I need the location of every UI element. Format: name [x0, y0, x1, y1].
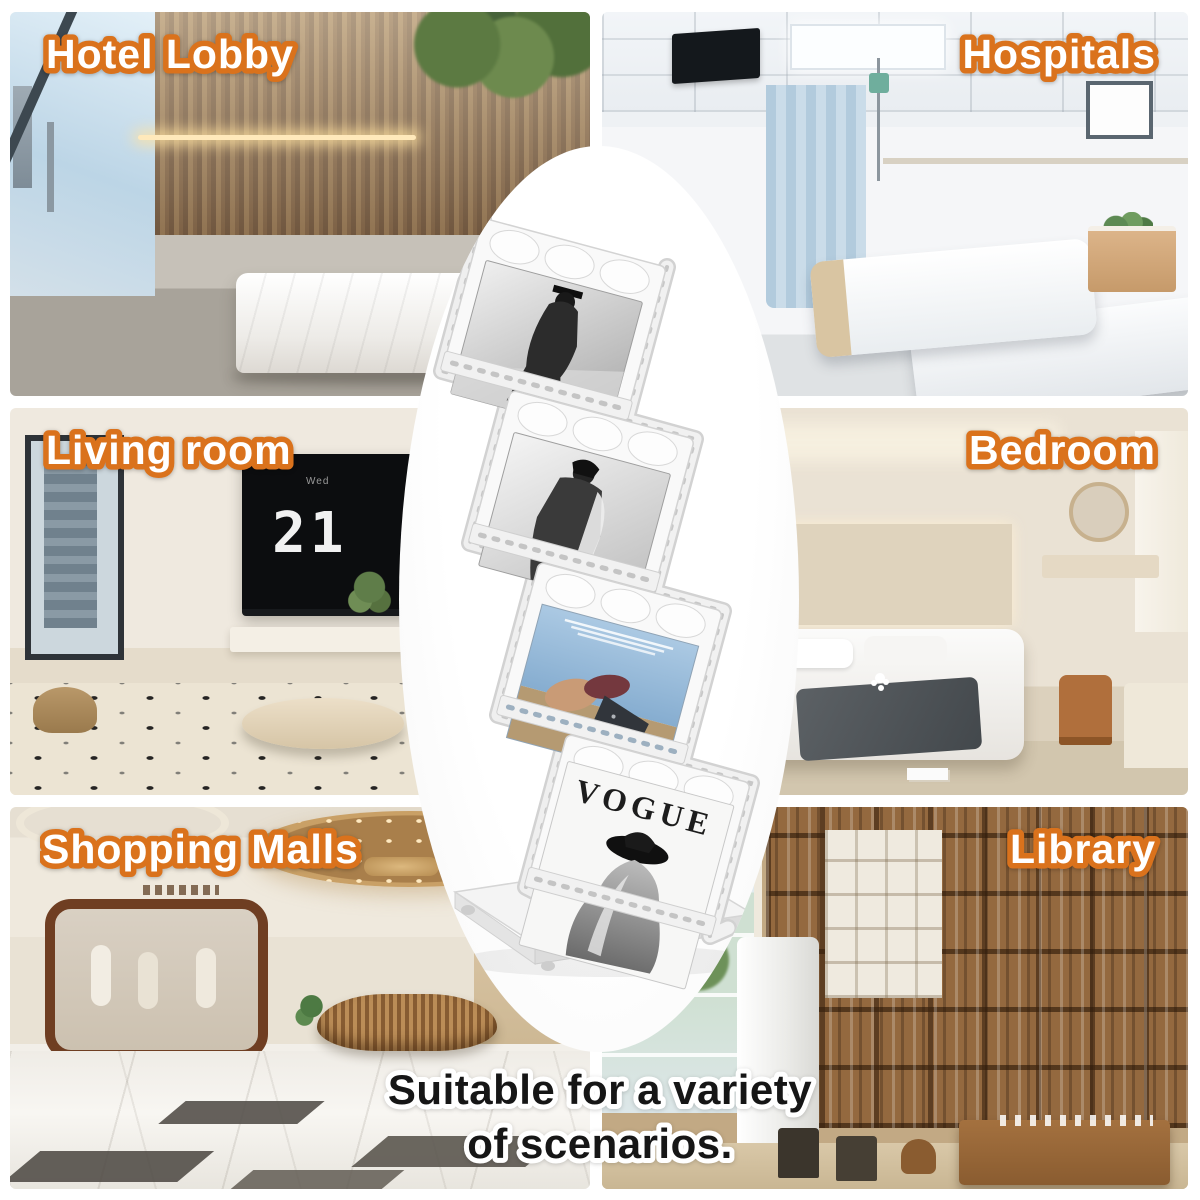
- caption: Suitable for a variety of scenarios.: [310, 1060, 890, 1180]
- bedroom-throw-blanket: [796, 676, 982, 761]
- caption-line-2: of scenarios.: [467, 1120, 733, 1167]
- bedroom-window-bench: [1124, 683, 1188, 768]
- product-capsule: ДОРОГА К МОРЮ VOGUE: [399, 146, 799, 1052]
- label-library: Library: [646, 815, 1166, 885]
- caption-line-1: Suitable for a variety: [388, 1066, 812, 1113]
- magazine-rack-illustration: ДОРОГА К МОРЮ VOGUE: [399, 146, 799, 1052]
- label-living-room: Living room: [40, 416, 560, 486]
- label-living-room-text: Living room: [46, 427, 292, 473]
- label-library-text: Library: [1010, 826, 1156, 872]
- label-hospitals: Hospitals: [646, 20, 1166, 90]
- hospital-bed-headboard: [809, 260, 851, 359]
- mall-store-sign: [143, 885, 218, 895]
- mall-mannequin: [138, 952, 158, 1009]
- library-glassware: [1000, 1115, 1152, 1126]
- mall-mannequin: [196, 948, 216, 1007]
- label-hotel-lobby-text: Hotel Lobby: [46, 31, 294, 77]
- bedroom-chair: [1059, 675, 1112, 745]
- label-shopping-malls: Shopping Malls: [40, 815, 560, 885]
- product-scenarios-collage: { "canvas": { "width": 1200, "height": 1…: [0, 0, 1200, 1200]
- label-bedroom: Bedroom: [646, 416, 1166, 486]
- hospital-cabinet: [1088, 226, 1176, 292]
- library-stool: [901, 1139, 936, 1173]
- library-table: [959, 1120, 1170, 1185]
- mall-mannequin: [91, 945, 111, 1006]
- living-room-plant: [346, 571, 392, 625]
- bedroom-vanity: [1042, 555, 1159, 578]
- label-bedroom-text: Bedroom: [969, 427, 1156, 473]
- bedroom-pillow: [864, 636, 947, 665]
- mall-floor-tile-dark: [10, 1151, 214, 1182]
- bedroom-flower-decor: [875, 673, 885, 683]
- label-hospitals-text: Hospitals: [962, 31, 1156, 77]
- label-hotel-lobby: Hotel Lobby: [40, 20, 560, 90]
- bedroom-mirror: [1069, 482, 1129, 542]
- mall-wood-slat-bench: [317, 994, 497, 1051]
- living-room-stool: [33, 687, 97, 733]
- bedroom-floor-book: [907, 768, 948, 780]
- living-room-coffee-table: [242, 698, 404, 748]
- hospital-wall-rail: [883, 158, 1188, 164]
- label-shopping-malls-text: Shopping Malls: [42, 826, 359, 872]
- mall-floor-tile-dark: [159, 1101, 325, 1124]
- hotel-light-fixture: [138, 135, 416, 140]
